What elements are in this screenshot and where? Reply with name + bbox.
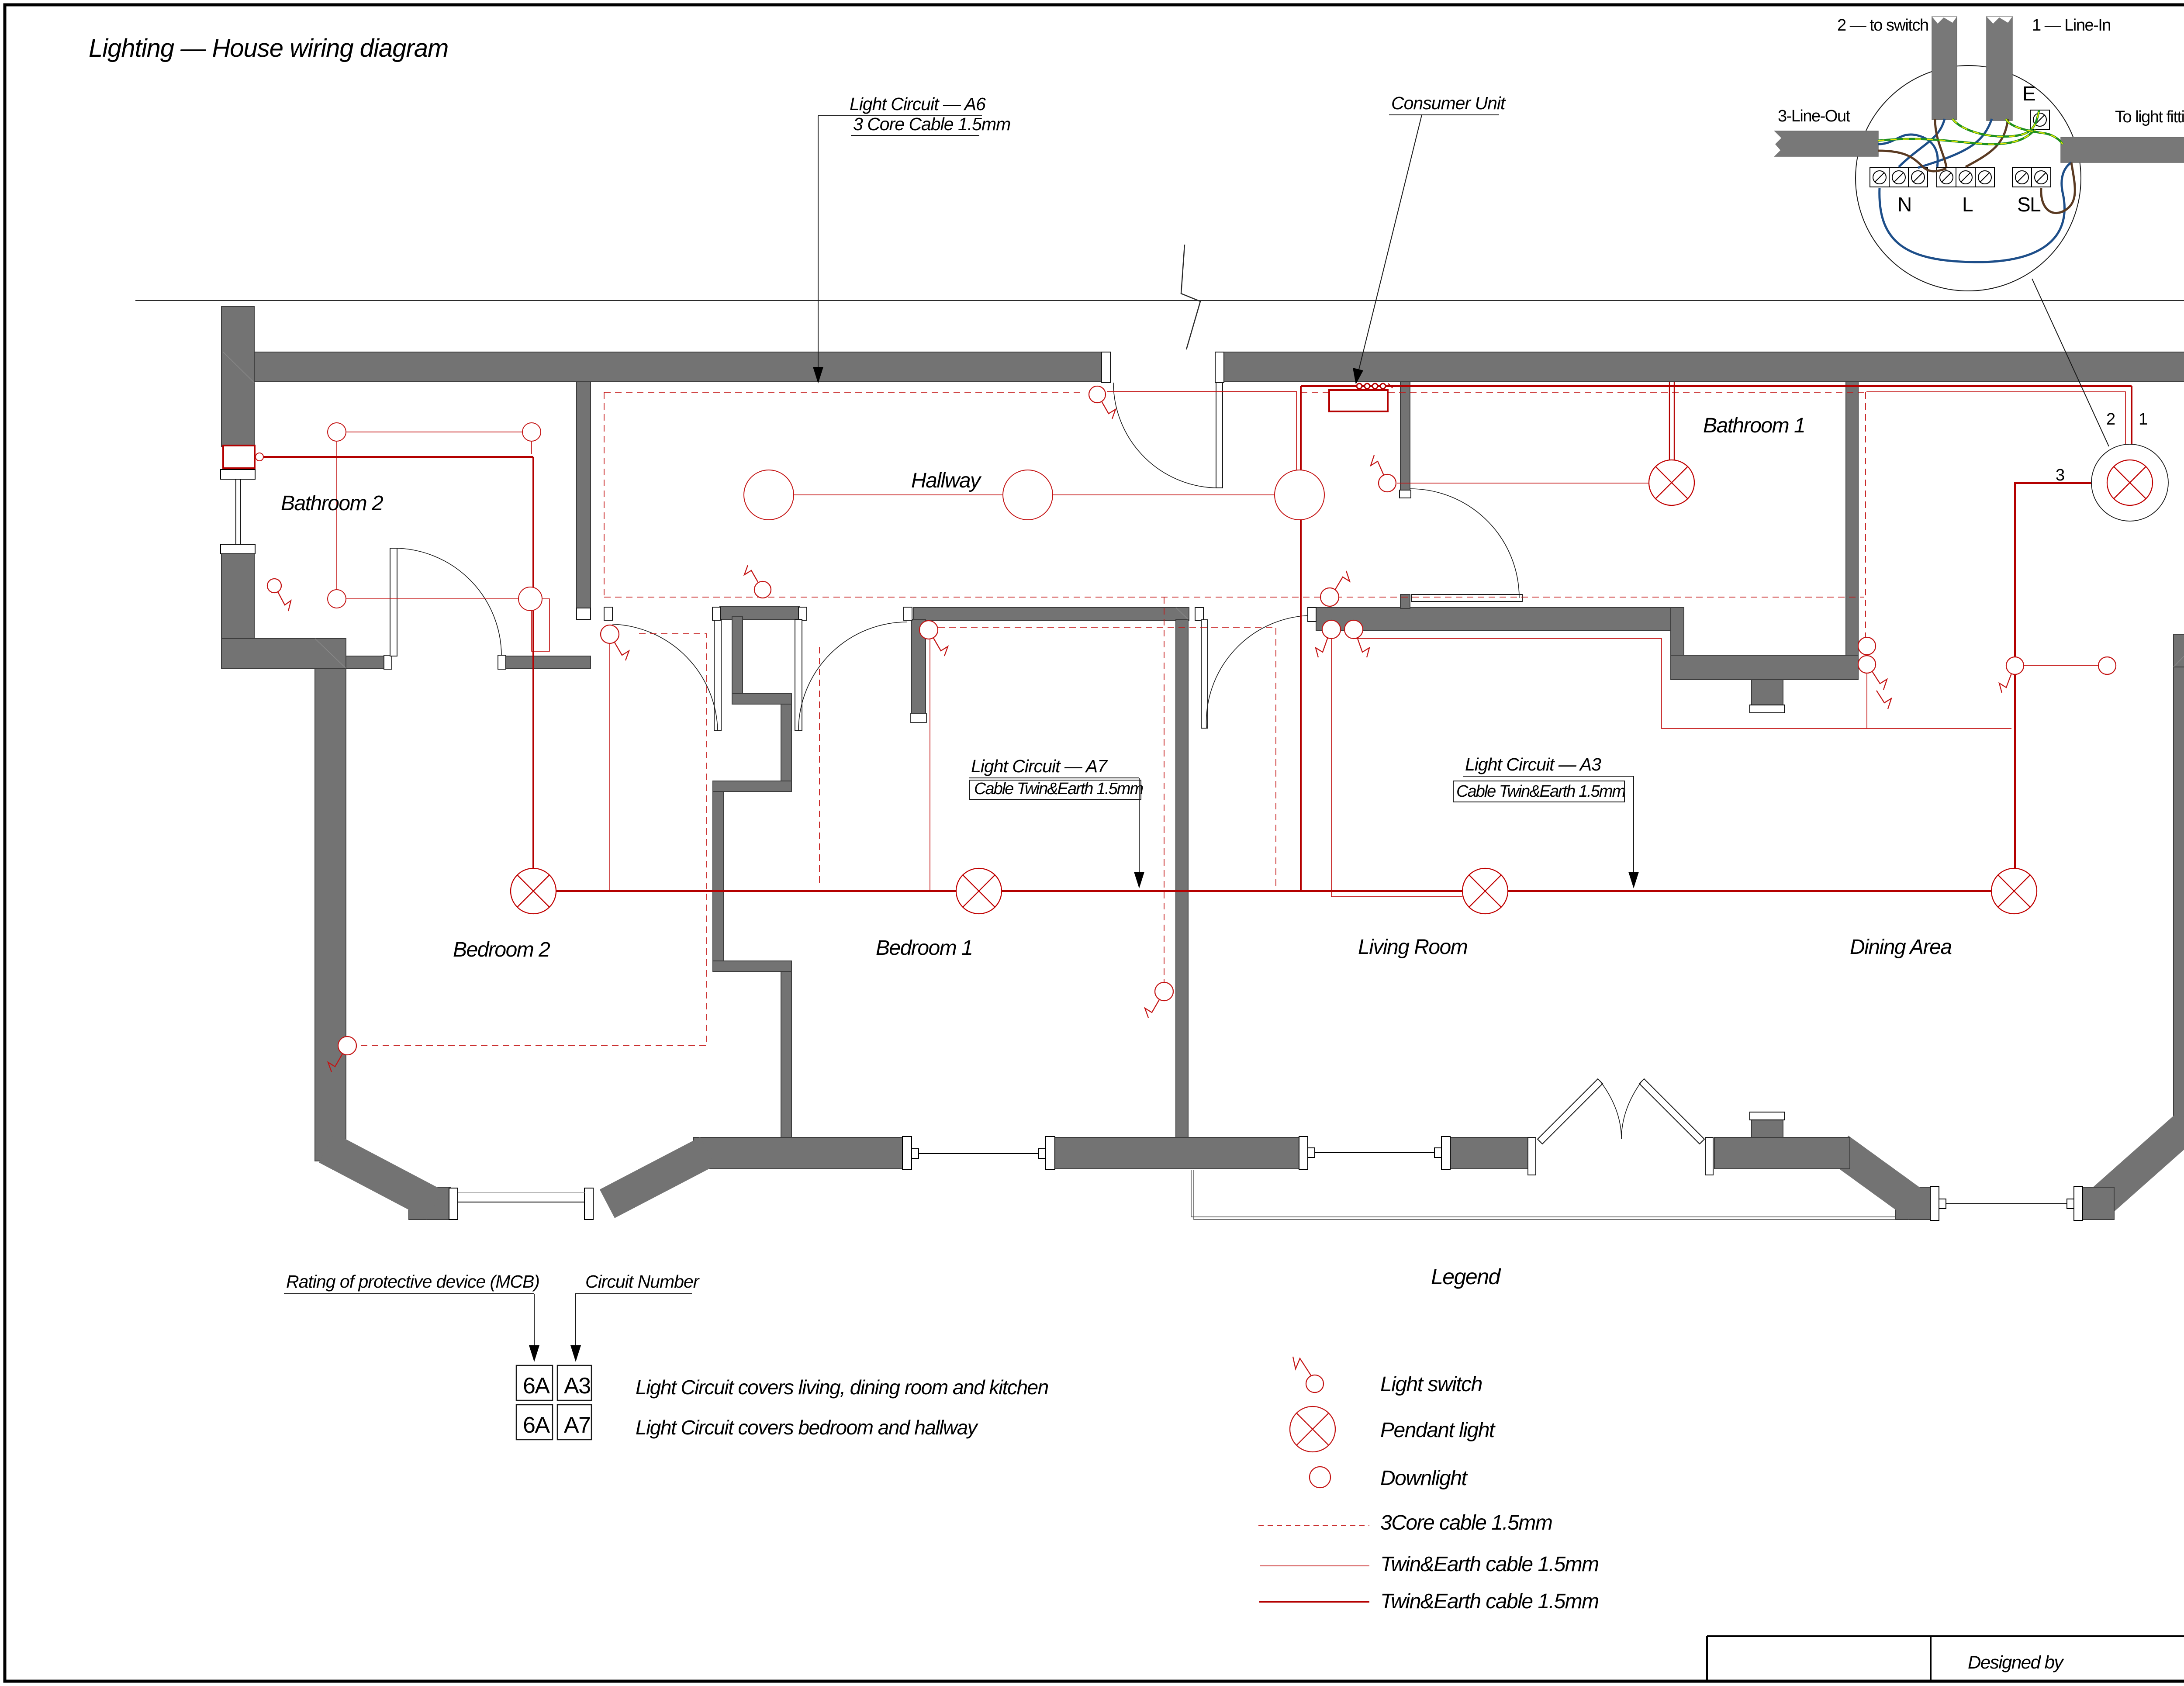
svg-text:3-Line-Out: 3-Line-Out xyxy=(1778,107,1850,125)
svg-text:Designed by: Designed by xyxy=(1968,1652,2064,1672)
svg-text:6A: 6A xyxy=(523,1413,550,1438)
svg-text:3: 3 xyxy=(2056,466,2064,484)
svg-text:1: 1 xyxy=(2139,410,2147,428)
svg-text:Light switch: Light switch xyxy=(1380,1373,1482,1396)
svg-text:N: N xyxy=(1897,193,1911,216)
svg-text:1 — Line-In: 1 — Line-In xyxy=(2032,16,2111,35)
svg-text:SL: SL xyxy=(2017,193,2041,216)
svg-text:Cable Twin&Earth 1.5mm: Cable Twin&Earth 1.5mm xyxy=(1456,782,1625,801)
svg-text:Pendant light: Pendant light xyxy=(1380,1419,1496,1442)
svg-text:Hallway: Hallway xyxy=(911,469,982,492)
svg-text:Twin&Earth cable 1.5mm: Twin&Earth cable 1.5mm xyxy=(1380,1553,1599,1576)
svg-text:Light Circuit — A7: Light Circuit — A7 xyxy=(971,756,1108,776)
svg-text:Consumer Unit: Consumer Unit xyxy=(1391,93,1506,113)
svg-text:Bathroom 1: Bathroom 1 xyxy=(1703,414,1805,437)
svg-text:Bedroom 2: Bedroom 2 xyxy=(453,938,550,961)
svg-text:Light Circuit covers living, d: Light Circuit covers living, dining room… xyxy=(636,1376,1048,1399)
svg-text:Lighting — House wiring diagra: Lighting — House wiring diagram xyxy=(89,34,448,62)
svg-text:2 — to switch: 2 — to switch xyxy=(1837,16,1928,35)
svg-text:Light Circuit — A6: Light Circuit — A6 xyxy=(850,94,986,114)
svg-text:Bathroom 2: Bathroom 2 xyxy=(281,492,383,515)
svg-text:3 Core Cable 1.5mm: 3 Core Cable 1.5mm xyxy=(853,114,1010,134)
svg-text:Cable Twin&Earth 1.5mm: Cable Twin&Earth 1.5mm xyxy=(974,780,1143,798)
svg-text:E: E xyxy=(2022,82,2035,105)
svg-text:Bedroom 1: Bedroom 1 xyxy=(876,936,972,960)
svg-text:6A: 6A xyxy=(523,1373,550,1399)
svg-text:Twin&Earth cable 1.5mm: Twin&Earth cable 1.5mm xyxy=(1380,1590,1599,1613)
svg-text:Living Room: Living Room xyxy=(1358,936,1467,959)
svg-text:Legend: Legend xyxy=(1431,1264,1502,1289)
svg-text:Light Circuit — A3: Light Circuit — A3 xyxy=(1465,754,1601,774)
svg-text:A7: A7 xyxy=(564,1413,591,1438)
svg-text:2: 2 xyxy=(2106,410,2115,428)
svg-text:A3: A3 xyxy=(564,1373,591,1399)
svg-text:Dining Area: Dining Area xyxy=(1850,936,1952,959)
svg-text:To light fitting: To light fitting xyxy=(2115,108,2184,126)
svg-text:Rating of protective device (M: Rating of protective device (MCB) xyxy=(286,1271,539,1292)
svg-text:L: L xyxy=(1962,193,1973,216)
svg-text:Downlight: Downlight xyxy=(1380,1467,1468,1490)
svg-text:3Core cable 1.5mm: 3Core cable 1.5mm xyxy=(1380,1511,1552,1534)
svg-text:Light Circuit covers bedroom a: Light Circuit covers bedroom and hallway xyxy=(636,1416,979,1439)
svg-text:Circuit Number: Circuit Number xyxy=(585,1271,700,1292)
